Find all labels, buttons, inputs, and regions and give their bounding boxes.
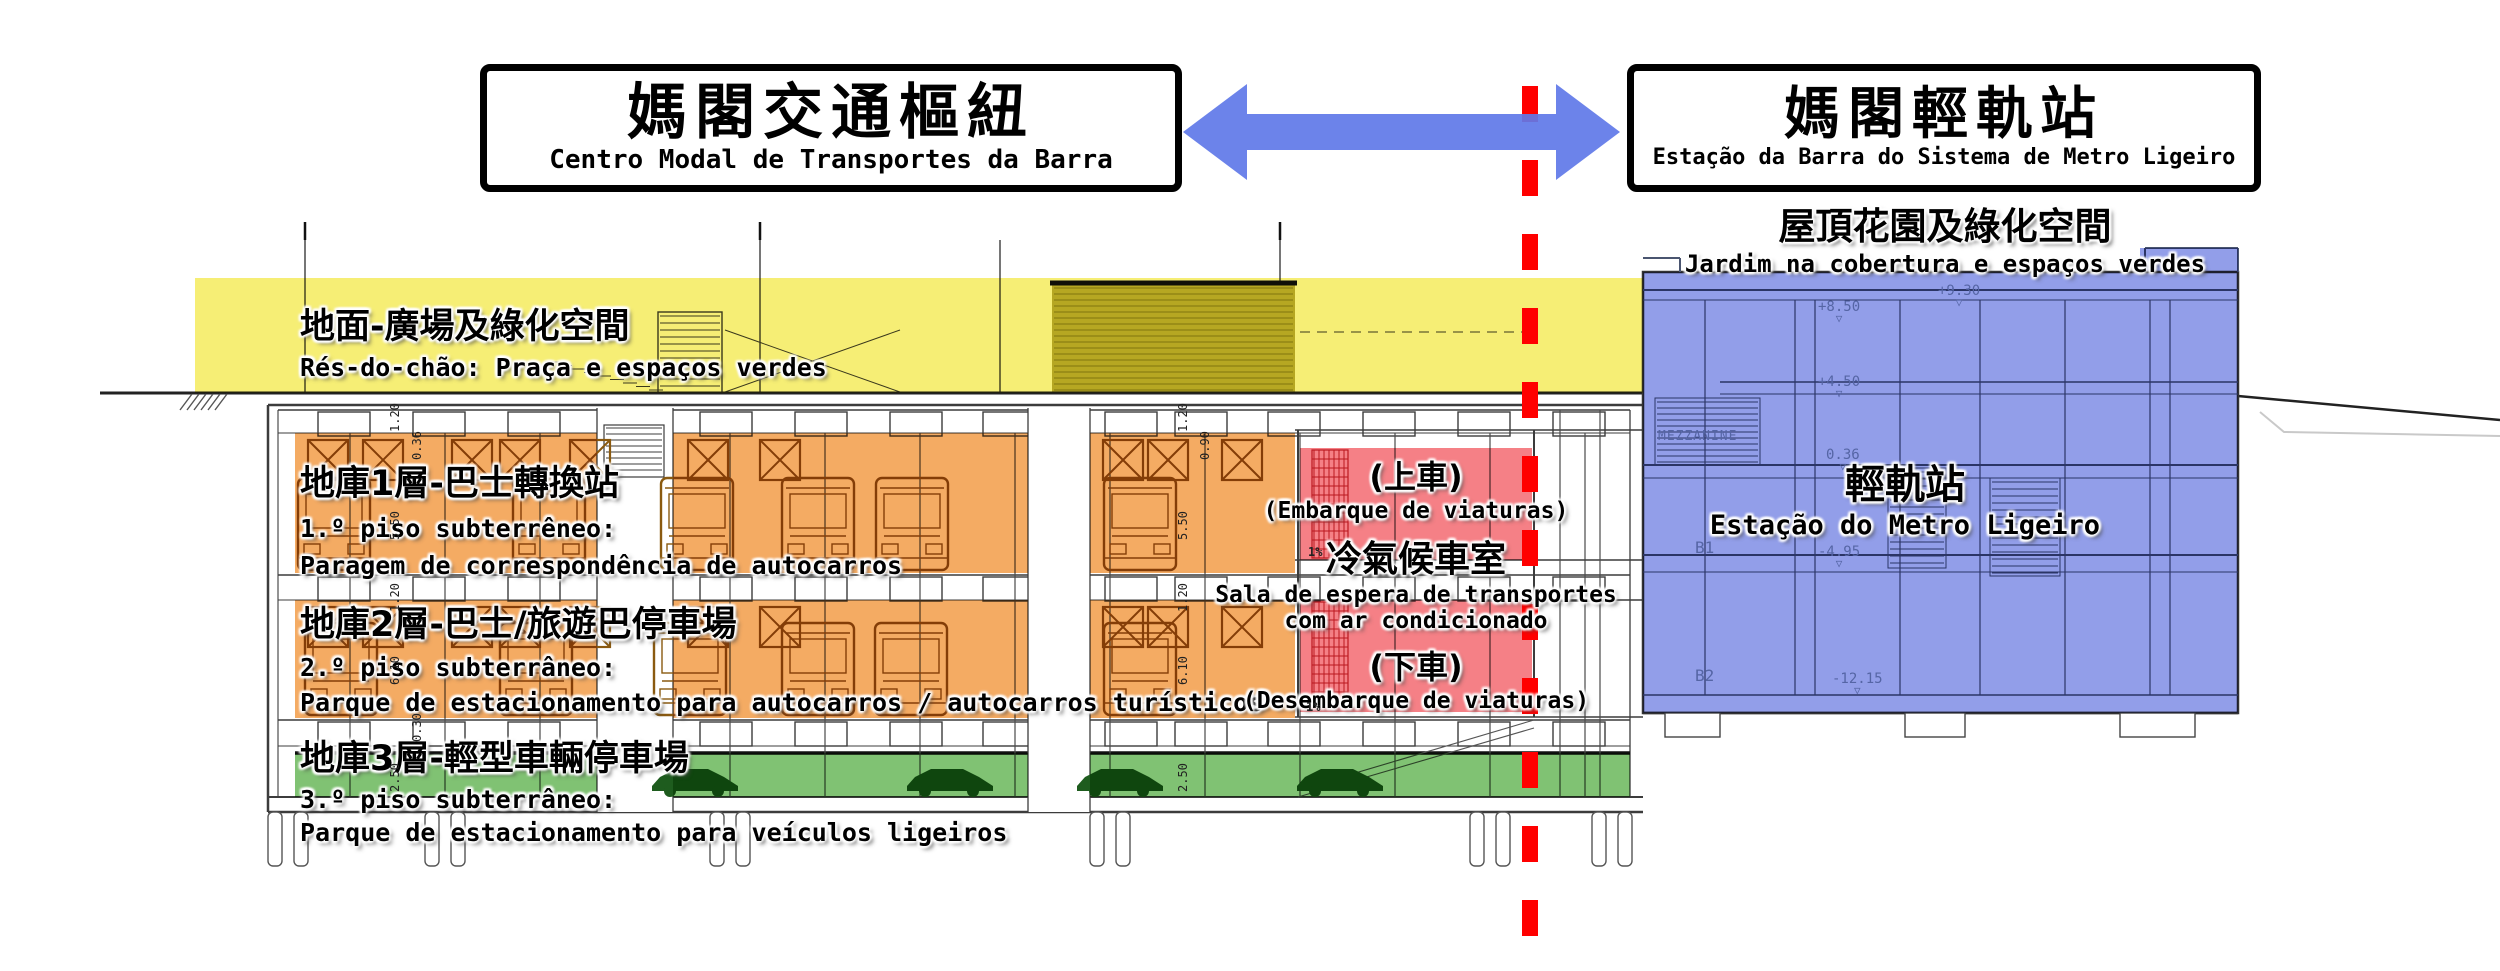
- lrt-station-zh: 輕軌站: [1705, 452, 2105, 510]
- alighting-zh: (下車): [1186, 642, 1646, 688]
- dim: 2.50: [388, 763, 402, 792]
- basement2-zh: 地庫2層-巴士/旅遊巴停車場: [300, 596, 1263, 647]
- elevation-930: +9.30 ▽: [1938, 284, 1980, 308]
- lrt-station-pt: Estação do Metro Ligeiro: [1705, 510, 2105, 541]
- basement2-pt2: Parque de estacionamento para autocarros…: [300, 688, 1263, 717]
- dim: 1.20: [1176, 403, 1190, 432]
- dim: 5.50: [1176, 511, 1190, 540]
- hub-title-pt: Centro Modal de Transportes da Barra: [549, 145, 1113, 175]
- level-b1-label: B1: [1695, 540, 1714, 556]
- boarding-pt: (Embarque de viaturas): [1186, 498, 1646, 524]
- roof-garden-pt: Jardim na cobertura e espaços verdes: [1645, 250, 2245, 278]
- section-diagram: 媽閣交通樞紐 Centro Modal de Transportes da Ba…: [0, 0, 2500, 971]
- hub-title-box: 媽閣交通樞紐 Centro Modal de Transportes da Ba…: [480, 64, 1182, 192]
- hub-title-zh: 媽閣交通樞紐: [627, 82, 1035, 145]
- basement1-zh: 地庫1層-巴士轉換站: [300, 455, 902, 506]
- basement2-pt1: 2.º piso subterrâneo:: [300, 653, 1263, 682]
- slope-label-lower: 1%: [1306, 700, 1320, 714]
- dim: 1.20: [388, 583, 402, 612]
- station-title-box: 媽閣輕軌站 Estação da Barra do Sistema de Met…: [1627, 64, 2261, 192]
- roof-garden-label: 屋頂花園及綠化空間 Jardim na cobertura e espaços …: [1645, 196, 2245, 278]
- two-way-arrow-icon: [1183, 84, 1620, 180]
- ground-zh: 地面-廣場及綠化空間: [300, 298, 827, 349]
- roof-garden-zh: 屋頂花園及綠化空間: [1645, 196, 2245, 250]
- dim: 5.50: [388, 511, 402, 540]
- alighting-pt: (Desembarque de viaturas): [1186, 688, 1646, 714]
- basement3-zh: 地庫3層-輕型車輛停車場: [300, 730, 1007, 781]
- basement3-label: 地庫3層-輕型車輛停車場 3.º piso subterrâneo: Parqu…: [300, 730, 1007, 847]
- basement2-label: 地庫2層-巴士/旅遊巴停車場 2.º piso subterrâneo: Par…: [300, 596, 1263, 717]
- station-title-zh: 媽閣輕軌站: [1784, 86, 2104, 145]
- basement3-pt2: Parque de estacionamento para veículos l…: [300, 818, 1007, 847]
- dim: 6.10: [388, 656, 402, 685]
- basement3-pt1: 3.º piso subterrâneo:: [300, 785, 1007, 814]
- dim: 0.36: [410, 431, 424, 460]
- station-title-pt: Estação da Barra do Sistema de Metro Lig…: [1653, 145, 2236, 170]
- slope-label-upper: 1%: [1308, 545, 1322, 559]
- waiting-room-pt2: com ar condicionado: [1186, 608, 1646, 634]
- mezzanine-label: MEZZANINE: [1658, 430, 1737, 443]
- dim: 1.20: [388, 403, 402, 432]
- level-b2-label: B2: [1695, 668, 1714, 684]
- elevation-m495: -4.95 ▽: [1818, 545, 1860, 569]
- elevation-036: 0.36 ▽: [1826, 448, 1860, 472]
- dim: 2.50: [1176, 763, 1190, 792]
- basement1-pt2: Paragem de correspondência de autocarros: [300, 551, 902, 580]
- lrt-station-label: 輕軌站 Estação do Metro Ligeiro: [1705, 452, 2105, 541]
- boarding-zh: (上車): [1186, 452, 1646, 498]
- dim: 1.20: [1176, 583, 1190, 612]
- elevation-450: +4.50 ▽: [1818, 375, 1860, 399]
- dim: 0.30: [410, 713, 424, 742]
- ground-pt: Rés-do-chão: Praça e espaços verdes: [300, 353, 827, 382]
- waiting-room-zh: 冷氣候車室: [1186, 530, 1646, 582]
- elevation-850: +8.50 ▽: [1818, 300, 1860, 324]
- waiting-room-pt1: Sala de espera de transportes: [1186, 582, 1646, 608]
- pickup-area-label: (上車) (Embarque de viaturas) 冷氣候車室 Sala d…: [1186, 452, 1646, 714]
- dim: 0.90: [1198, 431, 1212, 460]
- ground-label: 地面-廣場及綠化空間 Rés-do-chão: Praça e espaços …: [300, 298, 827, 382]
- elevation-m1215: -12.15 ▽: [1832, 672, 1883, 696]
- dim: 6.10: [1176, 656, 1190, 685]
